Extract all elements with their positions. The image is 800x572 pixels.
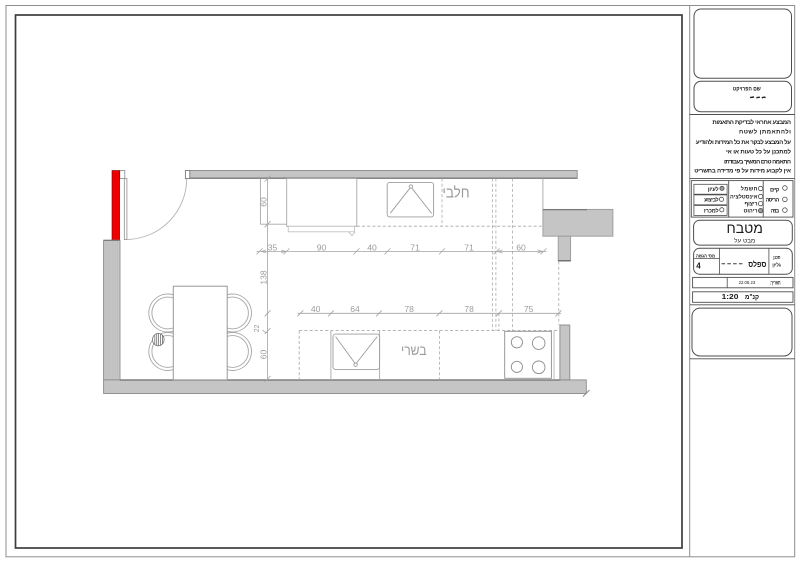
svg-text:בשרי: בשרי	[401, 343, 427, 359]
svg-text:ריהוט: ריהוט	[744, 209, 758, 215]
svg-text:המבצע אחראי לבדיקת התאמות: המבצע אחראי לבדיקת התאמות	[712, 118, 791, 126]
svg-text:40: 40	[367, 242, 377, 252]
svg-text:78: 78	[464, 304, 474, 314]
svg-text:קנ"מ: קנ"מ	[745, 294, 759, 301]
svg-text:60: 60	[258, 197, 268, 207]
svg-text:64: 64	[350, 304, 360, 314]
svg-text:לעיון: לעיון	[708, 186, 719, 193]
svg-text:תאריך:: תאריך:	[770, 280, 781, 286]
svg-text:שם הפרויקט: שם הפרויקט	[733, 86, 761, 92]
svg-text:הריסה: הריסה	[766, 198, 780, 204]
svg-text:גליון: גליון	[772, 262, 781, 269]
svg-text:90: 90	[317, 242, 327, 252]
svg-text:22: 22	[254, 325, 261, 333]
svg-text:חשמל: חשמל	[741, 186, 758, 193]
svg-text:מס' הגשה: מס' הגשה	[696, 253, 715, 259]
svg-text:22.06.23: 22.06.23	[739, 280, 756, 286]
svg-text:למתכנן על כל טעות או אי: למתכנן על כל טעות או אי	[726, 147, 792, 155]
svg-text:ספלס: ספלס	[748, 260, 767, 269]
svg-text:60: 60	[258, 350, 268, 360]
svg-text:קיים: קיים	[770, 187, 780, 193]
svg-text:לביצוע: לביצוע	[704, 197, 719, 204]
svg-text:אינסטלציה: אינסטלציה	[730, 193, 758, 200]
svg-text:למכרז: למכרז	[704, 207, 719, 214]
svg-text:מטבח: מטבח	[727, 220, 763, 236]
svg-text:תכנן: תכנן	[773, 255, 780, 261]
svg-text:על המבצע לבקר את כל המידות ולה: על המבצע לבקר את כל המידות ולהודיע	[696, 138, 791, 146]
svg-text:1:20: 1:20	[722, 294, 739, 301]
svg-text:75: 75	[524, 304, 534, 314]
svg-text:60: 60	[516, 242, 526, 252]
svg-text:מבט על: מבט על	[734, 237, 755, 244]
svg-text:התאמה טרם המשיך בעבודתו: התאמה טרם המשיך בעבודתו	[724, 159, 791, 166]
svg-text:71: 71	[410, 242, 420, 252]
svg-text:78: 78	[404, 304, 414, 314]
svg-text:ריצוף: ריצוף	[745, 202, 758, 208]
svg-text:אין לקבוע מידות על פי מדידה בת: אין לקבוע מידות על פי מדידה בתשריט	[694, 167, 792, 175]
svg-text:71: 71	[464, 242, 474, 252]
svg-text:חלבי: חלבי	[442, 184, 469, 201]
svg-text:35: 35	[268, 242, 278, 252]
svg-text:בניה: בניה	[771, 208, 780, 214]
svg-text:ולהתאמתן לשטח: ולהתאמתן לשטח	[739, 128, 791, 136]
svg-text:138: 138	[258, 270, 268, 285]
svg-text:4: 4	[696, 262, 701, 271]
svg-text:40: 40	[311, 304, 321, 314]
